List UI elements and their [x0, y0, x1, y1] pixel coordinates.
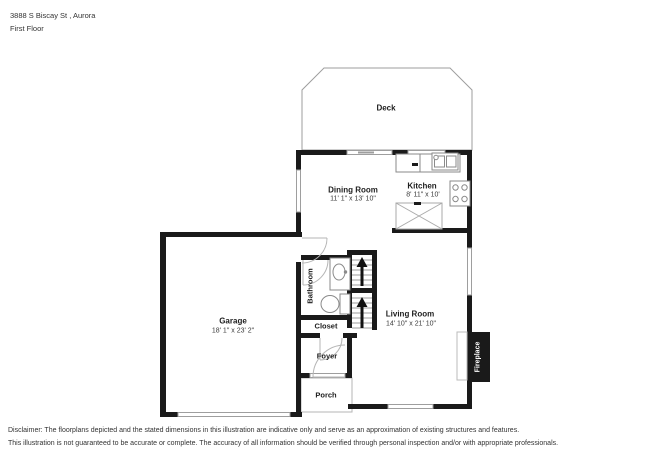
burner-icon: [462, 185, 467, 190]
porch-label: Porch: [315, 391, 336, 400]
toilet-bowl: [321, 296, 339, 313]
stairs-up-arrow-upper: [357, 257, 368, 286]
island-tick: [414, 202, 421, 205]
garage-dims: 18' 1" x 23' 2": [212, 328, 254, 335]
disclaimer-line-2: This illustration is not guaranteed to b…: [8, 437, 558, 450]
dining-window: [297, 170, 301, 212]
burner-icon: [453, 185, 458, 190]
slider-handle: [358, 152, 374, 154]
counter-tick: [412, 163, 418, 166]
bathroom-label: Bathroom: [306, 268, 315, 303]
foyer-label: Foyer: [317, 352, 337, 361]
living-room-label: Living Room: [386, 310, 434, 319]
toilet-tank: [340, 294, 350, 314]
burner-icon: [453, 196, 458, 201]
kitchen-dims: 8' 11" x 10': [406, 192, 439, 199]
disclaimer-line-1: Disclaimer: The floorplans depicted and …: [8, 424, 558, 437]
sink-basin-right: [447, 156, 457, 167]
range-stove: [450, 181, 470, 206]
living-bottom-window: [388, 405, 433, 409]
fireplace-hearth: [457, 332, 467, 380]
burner-icon: [462, 196, 467, 201]
garage-door: [178, 413, 290, 417]
sink-faucet-icon: [434, 155, 438, 159]
bathroom-sink: [333, 264, 345, 280]
closet-label: Closet: [315, 322, 338, 331]
disclaimer: Disclaimer: The floorplans depicted and …: [8, 424, 558, 450]
living-right-window: [468, 248, 472, 295]
living-room-dims: 14' 10" x 21' 10": [386, 321, 436, 328]
front-door-arc: [313, 345, 345, 377]
dining-room-dims: 11' 1" x 13' 10": [330, 196, 376, 203]
kitchen-label: Kitchen: [407, 182, 436, 191]
garage-label: Garage: [219, 317, 247, 326]
floorplan-page: 3888 S Biscay St , Aurora First Floor: [0, 0, 650, 460]
deck-label: Deck: [376, 104, 395, 113]
bathroom-fixtures: [321, 258, 350, 314]
fireplace-label: Fireplace: [475, 342, 482, 373]
vanity-faucet-icon: [344, 271, 346, 273]
dining-room-label: Dining Room: [328, 186, 378, 195]
